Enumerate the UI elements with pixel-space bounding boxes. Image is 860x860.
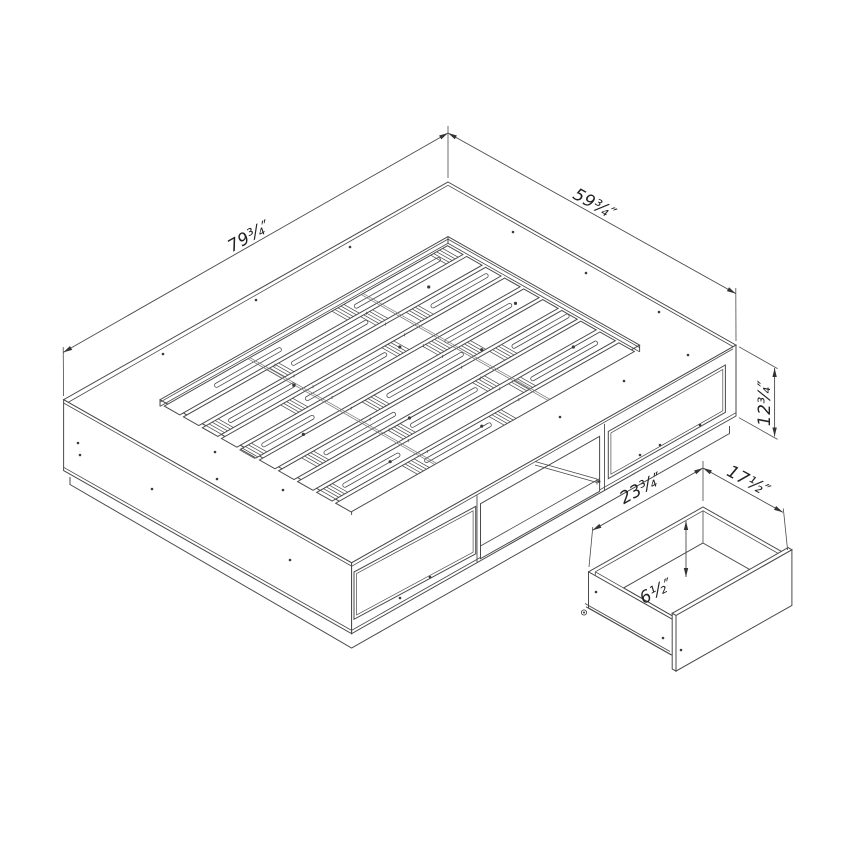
fastener-dot: [292, 384, 295, 387]
fastener-dot: [302, 433, 305, 436]
fastener-dot: [408, 416, 411, 419]
dimension-arrowhead: [63, 346, 72, 352]
screw-hole-dot: [216, 478, 219, 481]
screw-hole-dot: [680, 649, 683, 652]
bed-height-label: 12¾″: [755, 380, 775, 427]
screw-hole-dot: [687, 354, 690, 357]
screw-hole-dot: [662, 637, 665, 640]
screw-hole-dot: [639, 454, 642, 457]
storage-drawer: [581, 507, 792, 671]
fastener-dot: [480, 425, 483, 428]
fastener-dot: [480, 348, 483, 351]
screw-hole-dot: [595, 591, 598, 594]
screw-hole-dot: [699, 424, 702, 427]
screw-hole-dot: [255, 299, 258, 302]
fastener-dot: [389, 460, 392, 463]
screw-hole-dot: [429, 576, 432, 579]
dimension-arrowhead: [727, 287, 736, 293]
fastener-dot: [398, 345, 401, 348]
screw-hole-dot: [559, 416, 562, 419]
screw-hole-dot: [659, 444, 662, 447]
screw-hole-dot: [282, 489, 285, 492]
drawer-roller-axle: [583, 612, 585, 614]
dimension-arrowhead: [439, 133, 448, 139]
drawer-front-side-edge: [672, 613, 676, 671]
screw-hole-dot: [162, 353, 165, 356]
screw-hole-dot: [512, 231, 515, 234]
screw-hole-dot: [658, 311, 661, 314]
fastener-dot: [427, 285, 430, 288]
bed-length-label: 79¾″: [224, 216, 274, 256]
drawer-depth-label: 17½″: [723, 462, 773, 502]
dimension-arrowhead: [684, 521, 688, 530]
screw-hole-dot: [349, 246, 352, 249]
bed-width-label: 59¾″: [569, 185, 619, 225]
dimension-arrowhead: [694, 468, 703, 474]
technical-drawing-canvas: 79¾″ 59¾″ 12¾″ 23¾″ 17½″ 6½″: [0, 0, 860, 860]
screw-hole-dot: [289, 559, 292, 562]
screw-hole-dot: [399, 597, 402, 600]
extension-line: [589, 527, 593, 567]
screw-hole-dot: [214, 451, 217, 454]
glide-roller: [598, 480, 601, 483]
screw-hole-dot: [77, 442, 80, 445]
screw-hole-dot: [79, 454, 82, 457]
dimension-arrowhead: [772, 368, 776, 377]
extension-line: [783, 509, 787, 551]
drawing-page: 79¾″ 59¾″ 12¾″ 23¾″ 17½″ 6½″: [0, 0, 860, 860]
screw-hole-dot: [585, 272, 588, 275]
fastener-dot: [514, 302, 517, 305]
fastener-dot: [572, 345, 575, 348]
screw-hole-dot: [151, 488, 154, 491]
dimension-arrowhead: [772, 428, 776, 437]
extension-line: [739, 347, 778, 369]
dimension-arrowhead: [448, 133, 457, 139]
dimension-arrowhead: [774, 506, 783, 512]
screw-hole-dot: [623, 380, 626, 383]
dimension-arrowhead: [593, 524, 602, 530]
dimension-arrowhead: [703, 468, 712, 474]
